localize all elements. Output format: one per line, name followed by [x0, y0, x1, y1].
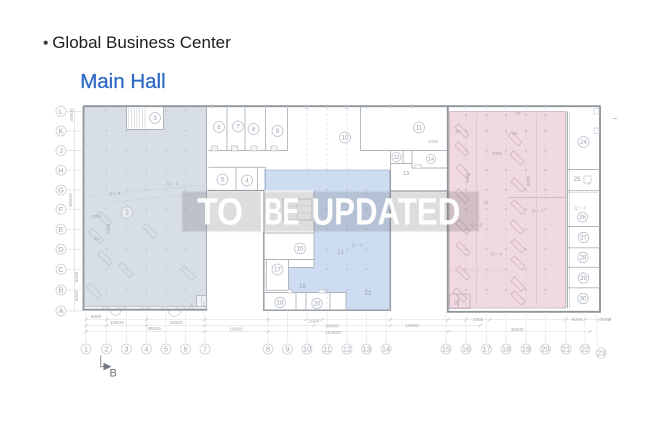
- svg-text:4: 4: [144, 345, 148, 354]
- svg-text:C: C: [58, 265, 64, 274]
- svg-text:22: 22: [581, 345, 589, 354]
- svg-text:1000: 1000: [492, 151, 503, 156]
- svg-text:1: 1: [202, 302, 205, 308]
- svg-text:20: 20: [541, 345, 549, 354]
- svg-text:L: L: [59, 107, 63, 116]
- svg-text:17: 17: [274, 268, 281, 274]
- svg-text:153000: 153000: [325, 330, 341, 336]
- svg-text:21: 21: [337, 250, 344, 256]
- svg-text:TO: TO: [197, 191, 243, 233]
- svg-text:18000: 18000: [110, 320, 124, 326]
- svg-text:26: 26: [579, 215, 586, 221]
- svg-text:F: F: [59, 205, 64, 214]
- svg-text:40000: 40000: [69, 108, 75, 122]
- svg-text:1000: 1000: [428, 139, 439, 144]
- svg-text:6: 6: [217, 125, 221, 131]
- svg-text:6000: 6000: [526, 175, 531, 186]
- svg-text:60000: 60000: [68, 193, 74, 207]
- svg-text:9: 9: [285, 345, 289, 354]
- svg-text:2000: 2000: [91, 214, 102, 219]
- svg-text:J: J: [59, 146, 63, 155]
- svg-text:6000: 6000: [465, 172, 470, 183]
- svg-text:10: 10: [303, 345, 311, 354]
- svg-text:5: 5: [221, 178, 225, 184]
- svg-text:Q = 3: Q = 3: [167, 181, 179, 186]
- svg-text:22: 22: [365, 291, 372, 297]
- svg-text:1: 1: [84, 345, 88, 354]
- svg-text:18: 18: [502, 345, 510, 354]
- svg-text:23: 23: [515, 111, 521, 116]
- svg-text:Q = 3: Q = 3: [532, 208, 544, 213]
- svg-text:7: 7: [203, 345, 207, 354]
- svg-text:18400: 18400: [405, 323, 419, 329]
- svg-text:45: 45: [94, 236, 100, 241]
- svg-text:A: A: [58, 307, 63, 316]
- svg-text:45: 45: [512, 131, 518, 136]
- svg-text:Q = 3: Q = 3: [351, 243, 363, 248]
- svg-text:13: 13: [362, 345, 370, 354]
- svg-text:5: 5: [164, 345, 168, 354]
- svg-text:E: E: [58, 225, 63, 234]
- svg-text:11: 11: [323, 345, 331, 354]
- svg-text:9: 9: [276, 129, 280, 135]
- svg-text:14: 14: [428, 157, 434, 163]
- svg-text:6000: 6000: [572, 317, 583, 323]
- svg-text:Q = 3: Q = 3: [109, 191, 121, 196]
- svg-text:16: 16: [462, 345, 470, 354]
- svg-text:12: 12: [343, 345, 351, 354]
- svg-text:Global Business Center: Global Business Center: [52, 33, 231, 52]
- svg-text:Q = 3: Q = 3: [574, 206, 586, 211]
- svg-text:25: 25: [574, 177, 581, 183]
- svg-text:14: 14: [382, 345, 390, 354]
- svg-text:18: 18: [277, 301, 284, 307]
- svg-text:18000: 18000: [169, 320, 183, 326]
- svg-text:H: H: [58, 166, 63, 175]
- svg-text:45: 45: [455, 129, 461, 134]
- svg-text:17: 17: [482, 345, 490, 354]
- svg-text:3: 3: [124, 345, 128, 354]
- svg-text:29: 29: [580, 276, 587, 282]
- svg-text:8: 8: [266, 345, 270, 354]
- svg-text:24: 24: [580, 140, 587, 146]
- svg-text:G: G: [58, 186, 64, 195]
- svg-text:15: 15: [442, 345, 450, 354]
- svg-text:K: K: [58, 127, 63, 136]
- svg-text:6000: 6000: [74, 290, 80, 301]
- svg-text:D: D: [58, 245, 64, 254]
- svg-text:19: 19: [522, 345, 530, 354]
- svg-text:4: 4: [245, 179, 249, 185]
- svg-text:6000: 6000: [91, 314, 102, 320]
- svg-text:27: 27: [580, 236, 587, 242]
- svg-text:11: 11: [416, 126, 423, 132]
- svg-text:21: 21: [562, 345, 570, 354]
- svg-text:7: 7: [236, 125, 240, 131]
- svg-text:28: 28: [580, 256, 587, 262]
- svg-text:30: 30: [580, 297, 587, 303]
- svg-text:BE: BE: [264, 191, 299, 233]
- svg-text:UPDATED: UPDATED: [312, 191, 461, 233]
- svg-text:13: 13: [403, 171, 409, 177]
- svg-text:1000: 1000: [473, 317, 484, 323]
- svg-text:31: 31: [483, 200, 489, 205]
- svg-text:Q = 3: Q = 3: [490, 251, 502, 256]
- svg-text:18000: 18000: [229, 326, 243, 332]
- svg-text:6000: 6000: [74, 271, 80, 282]
- svg-text:6: 6: [183, 345, 187, 354]
- svg-text:5000: 5000: [106, 223, 111, 234]
- svg-text:19: 19: [299, 284, 306, 290]
- svg-text:3000: 3000: [601, 317, 612, 323]
- svg-text:12: 12: [393, 155, 399, 161]
- svg-text:38000: 38000: [325, 324, 339, 330]
- svg-text:20: 20: [314, 302, 321, 308]
- svg-text:Main Hall: Main Hall: [80, 70, 165, 93]
- svg-text:32: 32: [454, 301, 460, 307]
- svg-text:2000: 2000: [309, 318, 320, 324]
- svg-text:23: 23: [597, 349, 605, 358]
- svg-text:8: 8: [252, 127, 256, 133]
- svg-text:36000: 36000: [147, 326, 161, 332]
- svg-text:15: 15: [297, 247, 304, 253]
- svg-text:45000: 45000: [510, 327, 524, 333]
- svg-text:B: B: [110, 368, 117, 380]
- svg-text:B: B: [58, 286, 63, 295]
- svg-text:2: 2: [104, 345, 108, 354]
- svg-text:10: 10: [342, 136, 349, 142]
